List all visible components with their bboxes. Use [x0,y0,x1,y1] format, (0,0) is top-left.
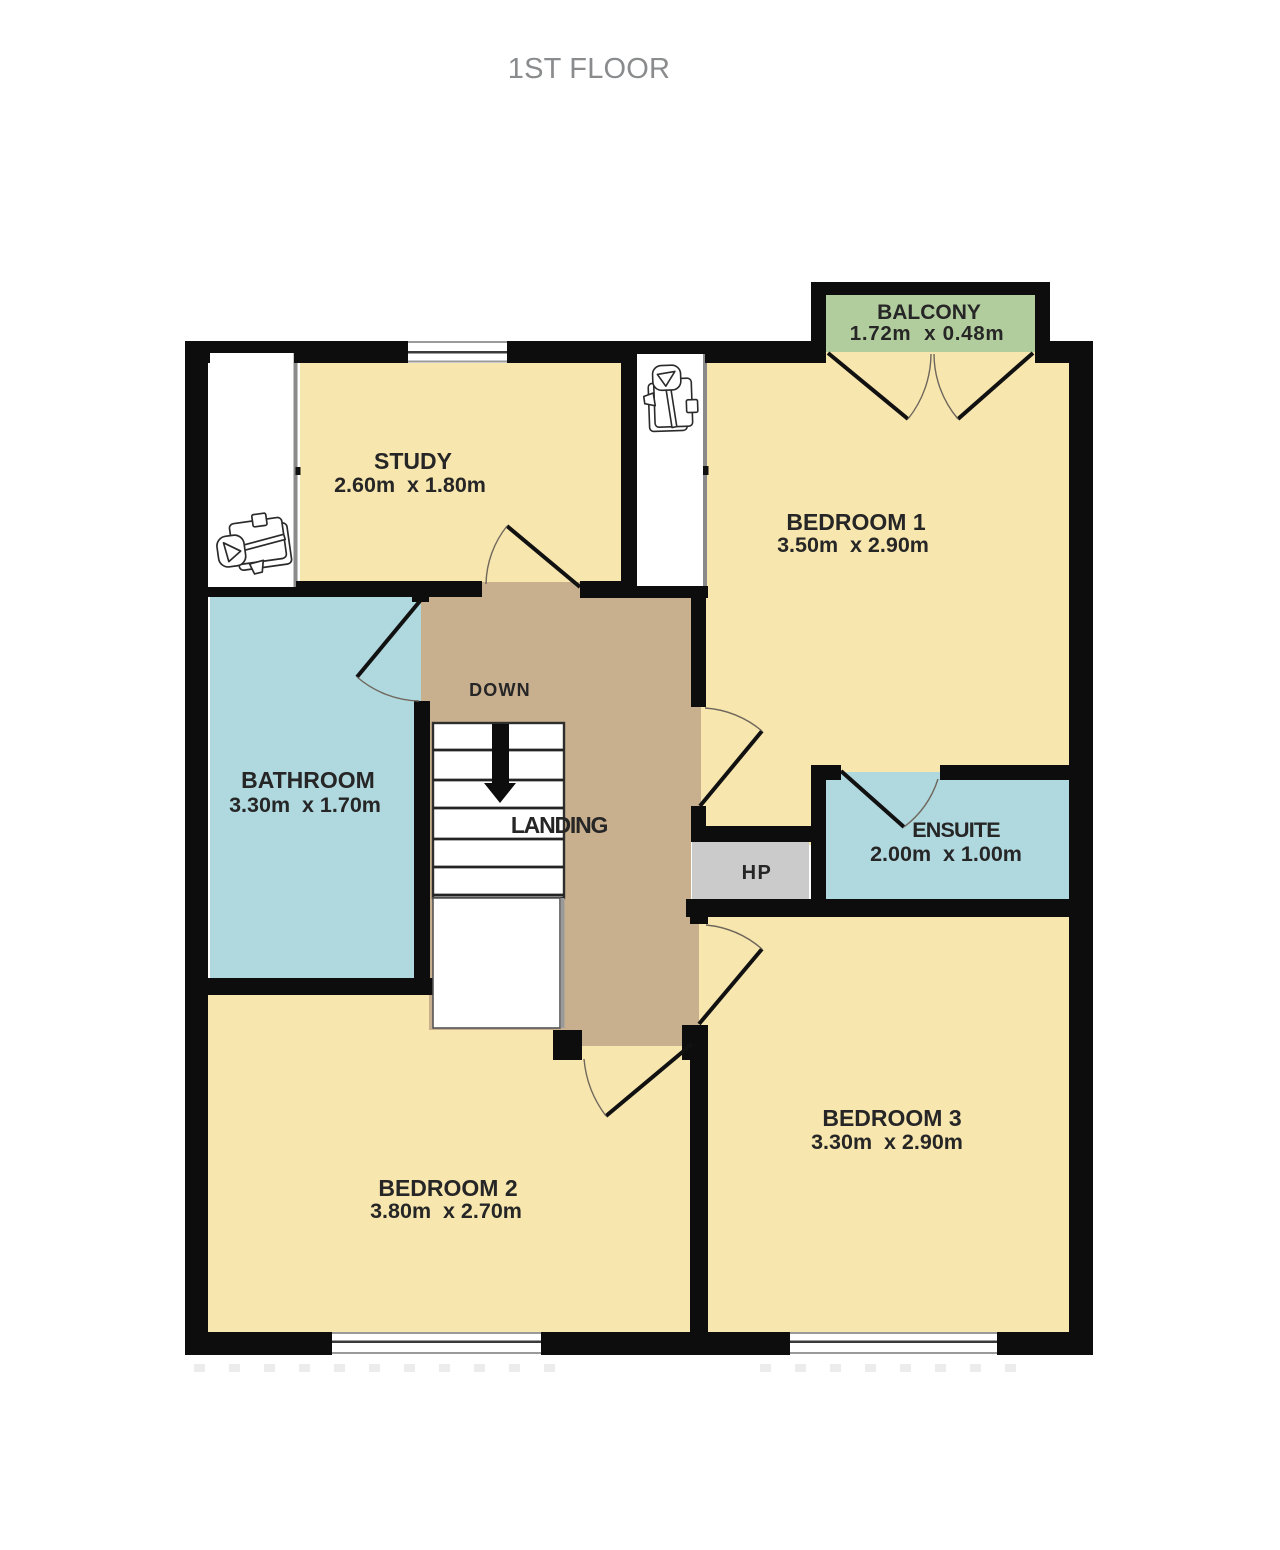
svg-text:2.60m x 1.80m: 2.60m x 1.80m [334,473,486,497]
svg-text:BALCONY: BALCONY [877,301,981,324]
svg-text:3.30m x 1.70m: 3.30m x 1.70m [229,793,381,817]
svg-text:HP: HP [742,862,773,884]
svg-text:ENSUITE: ENSUITE [912,818,1000,842]
svg-text:STUDY: STUDY [374,448,452,474]
svg-text:LANDING: LANDING [511,812,608,838]
svg-text:3.30m x 2.90m: 3.30m x 2.90m [811,1130,963,1154]
svg-text:BEDROOM 2: BEDROOM 2 [378,1175,517,1201]
svg-text:BEDROOM 3: BEDROOM 3 [822,1105,961,1131]
svg-text:2.00m x 1.00m: 2.00m x 1.00m [870,842,1022,866]
svg-text:DOWN: DOWN [469,680,531,700]
svg-text:BEDROOM 1: BEDROOM 1 [786,509,926,535]
svg-text:1.72m x 0.48m: 1.72m x 0.48m [850,322,1005,345]
svg-text:3.80m x 2.70m: 3.80m x 2.70m [370,1199,522,1223]
svg-text:BATHROOM: BATHROOM [241,767,375,793]
svg-text:1ST FLOOR: 1ST FLOOR [508,53,670,85]
svg-text:3.50m x 2.90m: 3.50m x 2.90m [777,533,929,557]
